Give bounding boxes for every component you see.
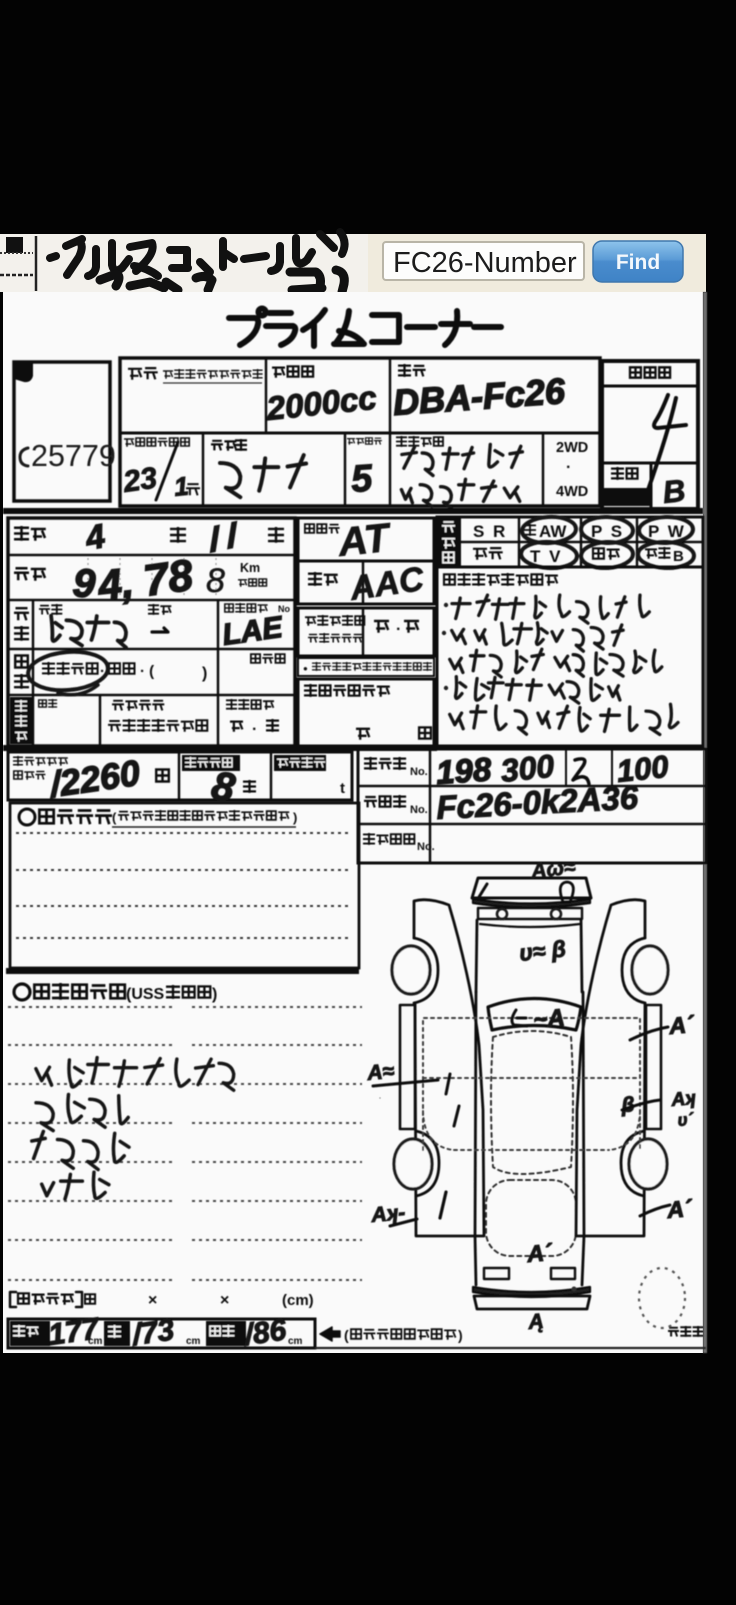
svg-text:AW: AW <box>539 522 567 541</box>
svg-text:×: × <box>148 1292 157 1309</box>
svg-text:23: 23 <box>120 462 159 500</box>
svg-text:No.: No. <box>410 766 428 778</box>
svg-text:(: ( <box>344 1327 349 1343</box>
svg-text:78: 78 <box>141 550 197 605</box>
svg-text:cm: cm <box>88 1336 103 1347</box>
svg-text:cm: cm <box>288 1336 303 1347</box>
svg-text:AT: AT <box>335 516 394 565</box>
svg-text:9: 9 <box>71 561 97 606</box>
svg-text:No.: No. <box>410 804 428 816</box>
svg-text:No.: No. <box>417 841 435 853</box>
svg-text:×: × <box>220 1292 229 1309</box>
svg-text:P W: P W <box>648 522 686 541</box>
svg-text:4WD: 4WD <box>556 484 588 500</box>
svg-text:8: 8 <box>206 562 225 600</box>
svg-text:·: · <box>396 621 401 638</box>
svg-text:Find: Find <box>616 251 660 274</box>
svg-text:cm: cm <box>186 1336 201 1347</box>
svg-text:A´: A´ <box>667 1011 696 1039</box>
svg-text:(USS: (USS <box>126 986 165 1003</box>
svg-text:5: 5 <box>350 458 375 501</box>
svg-text:A´: A´ <box>665 1195 694 1223</box>
svg-text:B: B <box>673 548 684 565</box>
svg-text:·: · <box>566 459 571 476</box>
svg-text:P S: P S <box>591 522 624 541</box>
svg-text:B: B <box>661 473 687 510</box>
svg-text:υ≈ β: υ≈ β <box>518 935 567 966</box>
svg-text:(cm): (cm) <box>282 1292 314 1309</box>
svg-text:): ) <box>202 665 207 682</box>
svg-text:A≈: A≈ <box>365 1060 395 1085</box>
svg-text:·: · <box>252 721 257 738</box>
svg-text:T V: T V <box>530 547 562 566</box>
svg-text:2WD: 2WD <box>556 440 588 456</box>
svg-text:/73: /73 <box>128 1313 176 1352</box>
svg-text:): ) <box>458 1327 463 1343</box>
svg-text:~A: ~A <box>532 1004 566 1034</box>
svg-text:): ) <box>293 810 297 825</box>
svg-text:t: t <box>340 780 345 797</box>
svg-text:198: 198 <box>435 750 493 791</box>
svg-text:4,: 4, <box>95 559 136 610</box>
svg-text:●: ● <box>303 664 308 673</box>
svg-text:25779: 25779 <box>31 439 116 473</box>
svg-text:): ) <box>212 986 217 1003</box>
svg-text:υ´: υ´ <box>677 1110 696 1130</box>
svg-text:Ą: Ą <box>526 1310 544 1334</box>
svg-text:Aʞ: Aʞ <box>670 1088 697 1111</box>
svg-text:A´: A´ <box>525 1239 554 1267</box>
svg-text:· (: · ( <box>140 663 154 680</box>
svg-text:/86: /86 <box>240 1313 288 1352</box>
svg-text:FC26-Number: FC26-Number <box>393 247 577 279</box>
svg-text:Aω≈: Aω≈ <box>529 855 577 883</box>
svg-text:Km: Km <box>240 561 260 575</box>
svg-text:S R: S R <box>473 522 507 541</box>
svg-text:(: ( <box>112 810 117 825</box>
